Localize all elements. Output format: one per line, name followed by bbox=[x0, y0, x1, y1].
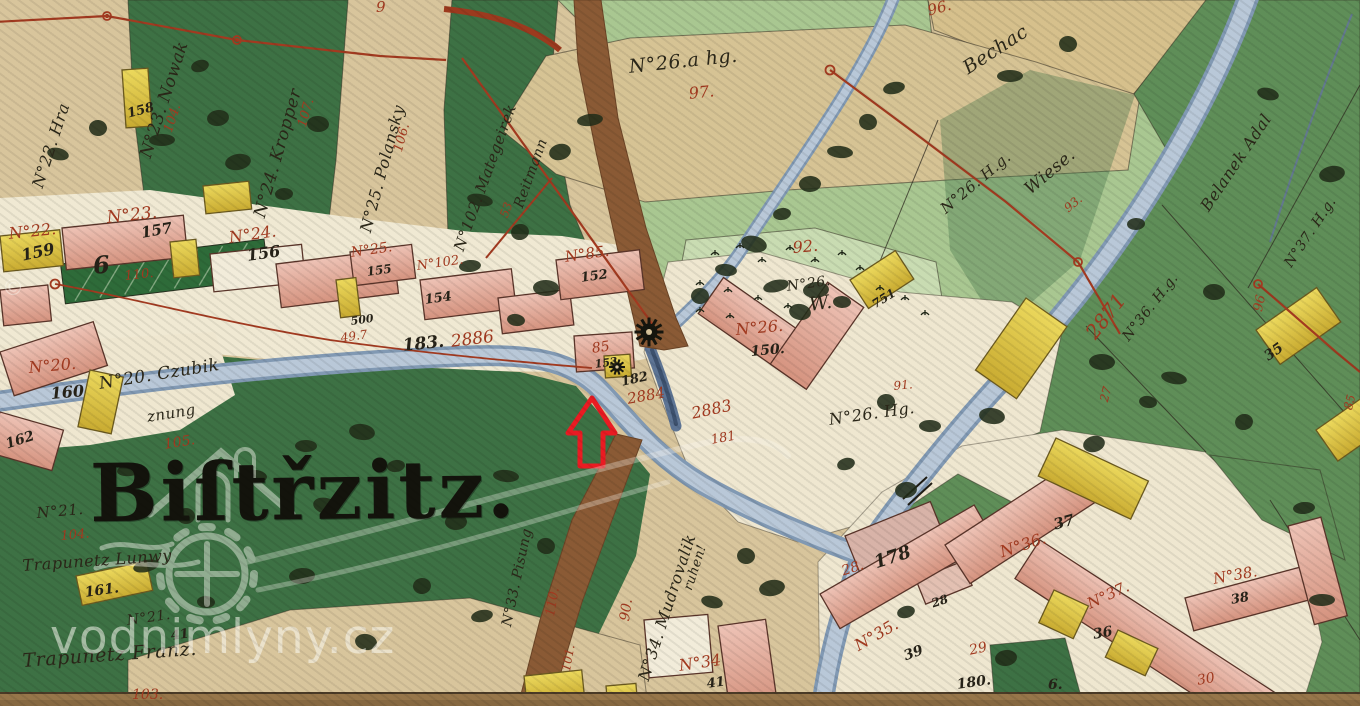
watermark-text: vodnimlyny.cz bbox=[50, 610, 395, 665]
village-name-label: Biſtřzitz. bbox=[90, 442, 519, 540]
watermark-copyright: © bbox=[2, 276, 24, 301]
map-canvas[interactable]: N°22. HraN°23. Nowak104.N°24. Kropper107… bbox=[0, 0, 1360, 706]
map-artwork bbox=[0, 0, 1360, 706]
map-sheet-edge bbox=[0, 692, 1360, 706]
